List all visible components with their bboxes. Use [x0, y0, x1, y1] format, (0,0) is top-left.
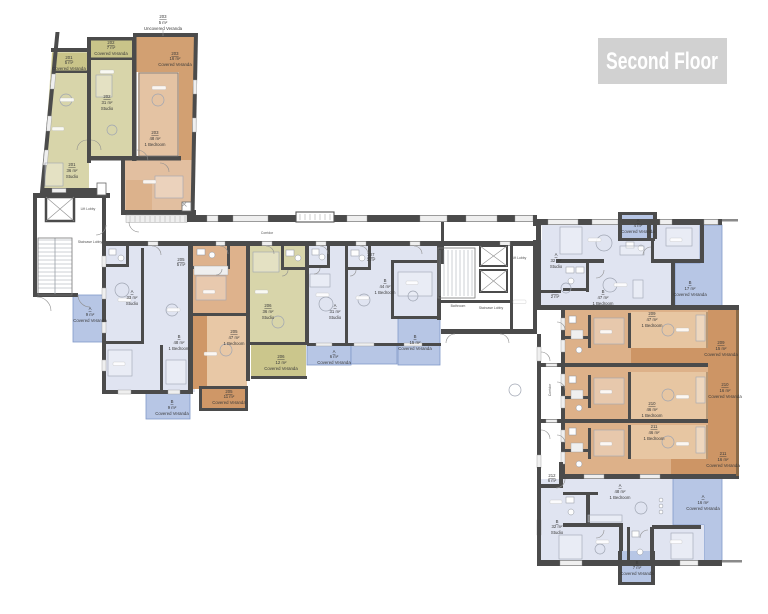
svg-text:Lift Lobby: Lift Lobby [81, 207, 96, 211]
svg-text:Studio: Studio [329, 315, 342, 320]
svg-text:A: A [619, 483, 622, 488]
svg-text:Covered Veranda: Covered Veranda [317, 360, 351, 365]
svg-text:48 m²: 48 m² [615, 489, 627, 494]
svg-text:31 m²: 31 m² [102, 100, 114, 105]
svg-text:206: 206 [277, 354, 285, 359]
svg-text:Studio: Studio [101, 106, 114, 111]
svg-text:B: B [384, 278, 387, 283]
svg-text:Staircase Lobby: Staircase Lobby [78, 240, 103, 244]
svg-text:46 m²: 46 m² [649, 430, 661, 435]
svg-text:A: A [131, 289, 134, 294]
svg-text:1 Bedroom: 1 Bedroom [592, 301, 613, 306]
svg-text:Covered Veranda: Covered Veranda [704, 352, 738, 357]
svg-text:1 Bedroom: 1 Bedroom [641, 323, 662, 328]
svg-text:12 m²: 12 m² [276, 360, 288, 365]
svg-text:Bathroom: Bathroom [451, 304, 466, 308]
svg-text:Covered Veranda: Covered Veranda [686, 506, 720, 511]
svg-text:15 m²: 15 m² [410, 340, 422, 345]
svg-text:B: B [171, 399, 174, 404]
svg-text:36 m²: 36 m² [67, 168, 79, 173]
svg-text:7 m²: 7 m² [107, 45, 116, 50]
svg-text:211: 211 [720, 451, 727, 456]
svg-text:210: 210 [721, 382, 729, 387]
svg-text:47 m²: 47 m² [229, 335, 241, 340]
svg-text:16 m²: 16 m² [698, 500, 710, 505]
svg-text:47 m²: 47 m² [647, 317, 659, 322]
svg-text:Studio: Studio [66, 174, 79, 179]
svg-text:209: 209 [648, 311, 656, 316]
svg-text:47 m²: 47 m² [598, 295, 610, 300]
svg-text:Covered Veranda: Covered Veranda [264, 366, 298, 371]
svg-text:36 m²: 36 m² [263, 309, 275, 314]
svg-text:32 m²: 32 m² [552, 524, 564, 529]
svg-text:209: 209 [717, 340, 725, 345]
svg-text:6 m²: 6 m² [548, 478, 557, 483]
svg-text:46 m²: 46 m² [647, 407, 659, 412]
svg-text:206: 206 [264, 303, 272, 308]
svg-text:Covered Veranda: Covered Veranda [398, 346, 432, 351]
svg-text:Uncovered Veranda: Uncovered Veranda [144, 26, 183, 31]
svg-text:205: 205 [230, 329, 238, 334]
svg-text:Staircase Lobby: Staircase Lobby [479, 306, 504, 310]
svg-text:B: B [178, 334, 181, 339]
svg-text:A: A [555, 252, 558, 257]
svg-text:5 m²: 5 m² [159, 20, 168, 25]
svg-text:Studio: Studio [126, 301, 139, 306]
svg-text:Studio: Studio [262, 315, 275, 320]
svg-text:Covered Veranda: Covered Veranda [158, 62, 192, 67]
svg-text:Covered Veranda: Covered Veranda [708, 394, 742, 399]
svg-text:16 m²: 16 m² [718, 457, 730, 462]
svg-text:4 m²: 4 m² [634, 223, 643, 228]
svg-text:210: 210 [648, 401, 656, 406]
svg-text:Covered Veranda: Covered Veranda [706, 463, 740, 468]
svg-text:48 m²: 48 m² [174, 340, 186, 345]
svg-text:48 m²: 48 m² [150, 136, 162, 141]
svg-text:203: 203 [151, 130, 159, 135]
svg-text:B: B [602, 289, 605, 294]
svg-text:A: A [702, 494, 705, 499]
svg-text:1 Bedroom: 1 Bedroom [374, 290, 395, 295]
svg-text:A: A [334, 303, 337, 308]
svg-text:2 m²: 2 m² [551, 294, 560, 299]
svg-text:Covered Veranda: Covered Veranda [620, 571, 654, 576]
svg-text:1 Bedroom: 1 Bedroom [144, 142, 165, 147]
svg-text:Second Floor: Second Floor [606, 48, 718, 75]
svg-text:16 m²: 16 m² [720, 388, 732, 393]
svg-text:1 Bedroom: 1 Bedroom [641, 413, 662, 418]
svg-text:Covered Veranda: Covered Veranda [212, 400, 246, 405]
svg-text:44 m²: 44 m² [380, 284, 392, 289]
svg-text:Lift Lobby: Lift Lobby [512, 256, 527, 260]
svg-text:Corridor: Corridor [548, 383, 552, 396]
svg-text:9 m²: 9 m² [168, 405, 177, 410]
svg-text:7 m²: 7 m² [633, 565, 642, 570]
svg-text:Corridor: Corridor [261, 231, 274, 235]
svg-text:Covered Veranda: Covered Veranda [673, 292, 707, 297]
svg-text:Covered Veranda: Covered Veranda [52, 66, 86, 71]
svg-text:1 Bedroom: 1 Bedroom [643, 436, 664, 441]
svg-text:1 Bedroom: 1 Bedroom [223, 341, 244, 346]
svg-text:5 m²: 5 m² [65, 60, 74, 65]
svg-text:6 m²: 6 m² [330, 354, 339, 359]
svg-text:17 m²: 17 m² [685, 286, 697, 291]
svg-text:202: 202 [103, 94, 111, 99]
svg-text:211: 211 [651, 424, 658, 429]
svg-text:Covered Veranda: Covered Veranda [73, 318, 107, 323]
svg-text:Studio: Studio [550, 264, 563, 269]
svg-text:32 m²: 32 m² [551, 258, 563, 263]
svg-text:9 m²: 9 m² [86, 312, 95, 317]
svg-text:Studio: Studio [551, 530, 564, 535]
svg-text:1 Bedroom: 1 Bedroom [168, 346, 189, 351]
svg-text:11 m²: 11 m² [224, 394, 235, 399]
svg-text:16 m²: 16 m² [170, 56, 182, 61]
svg-text:31 m²: 31 m² [330, 309, 342, 314]
svg-text:203: 203 [159, 14, 167, 19]
svg-text:B: B [689, 280, 692, 285]
svg-text:15 m²: 15 m² [716, 346, 728, 351]
svg-text:1 Bedroom: 1 Bedroom [609, 495, 630, 500]
svg-text:B: B [414, 334, 417, 339]
svg-text:5 m²: 5 m² [177, 262, 186, 267]
svg-text:3 m²: 3 m² [367, 257, 376, 262]
svg-text:201: 201 [68, 162, 76, 167]
svg-text:Covered Veranda: Covered Veranda [155, 411, 189, 416]
svg-text:Covered Veranda: Covered Veranda [94, 51, 128, 56]
svg-text:Covered Veranda: Covered Veranda [621, 229, 655, 234]
svg-text:33 m²: 33 m² [127, 295, 139, 300]
svg-text:A: A [89, 306, 92, 311]
